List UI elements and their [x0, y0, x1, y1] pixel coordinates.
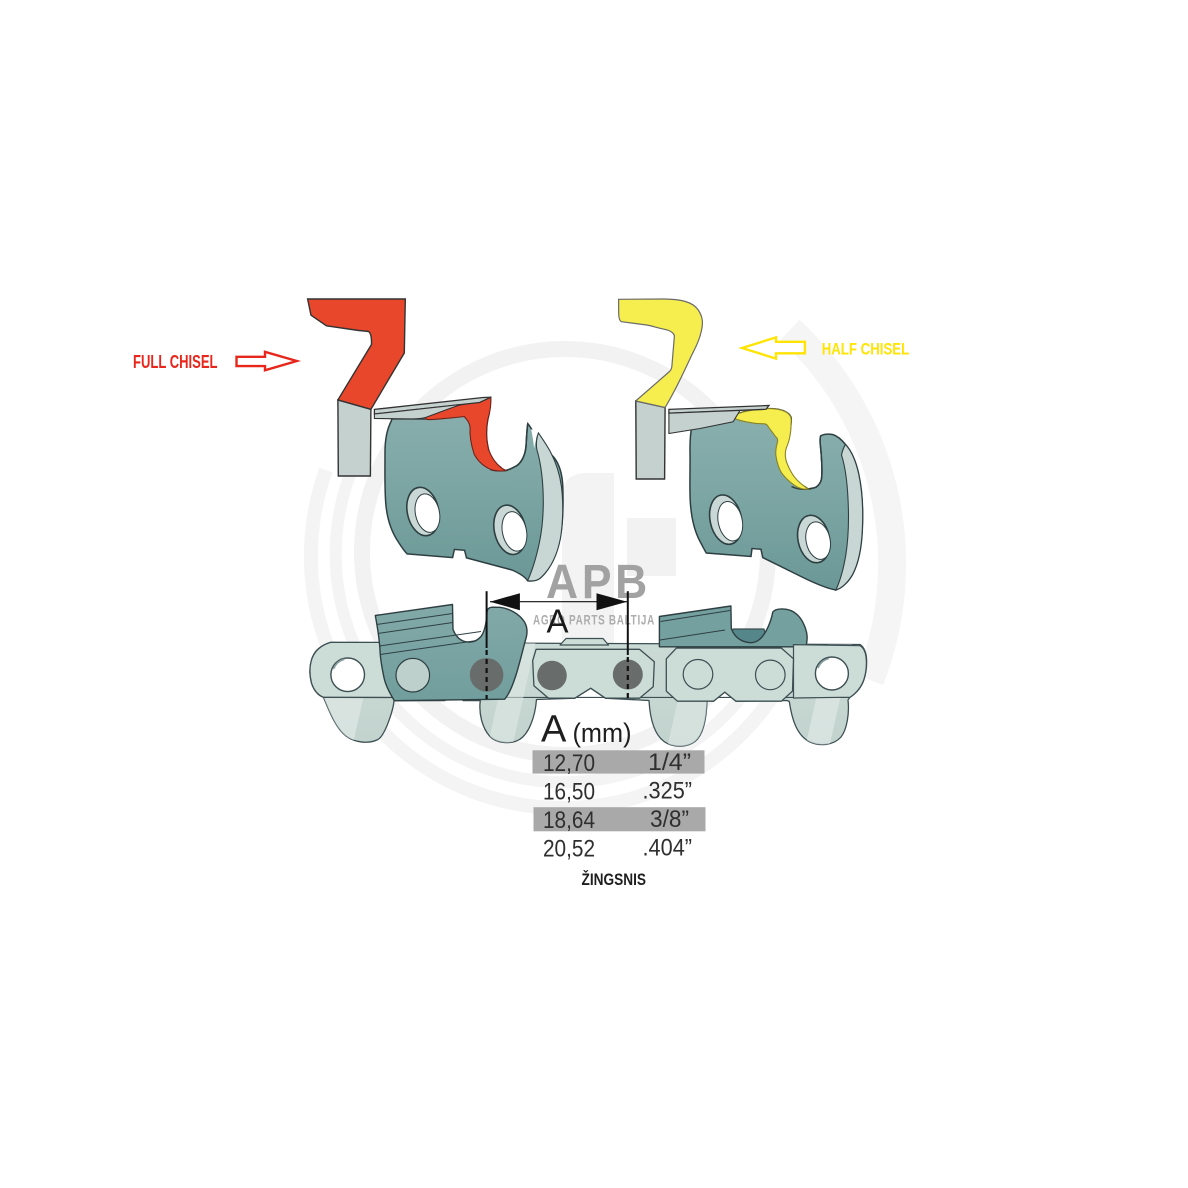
- svg-text:18,64: 18,64: [543, 807, 595, 834]
- svg-text:12,70: 12,70: [543, 750, 595, 777]
- svg-text:HALF CHISEL: HALF CHISEL: [822, 340, 910, 359]
- svg-text:3/8”: 3/8”: [650, 806, 689, 833]
- svg-text:.404”: .404”: [643, 834, 693, 861]
- svg-text:(mm): (mm): [573, 718, 632, 748]
- svg-text:FULL CHISEL: FULL CHISEL: [133, 352, 218, 372]
- svg-text:.325”: .325”: [643, 778, 693, 805]
- svg-text:16,50: 16,50: [543, 779, 595, 806]
- svg-text:20,52: 20,52: [543, 836, 595, 863]
- svg-text:1/4”: 1/4”: [648, 749, 691, 776]
- svg-text:A: A: [541, 709, 567, 751]
- svg-text:A: A: [547, 602, 569, 639]
- svg-text:ŽINGSNIS: ŽINGSNIS: [582, 870, 647, 889]
